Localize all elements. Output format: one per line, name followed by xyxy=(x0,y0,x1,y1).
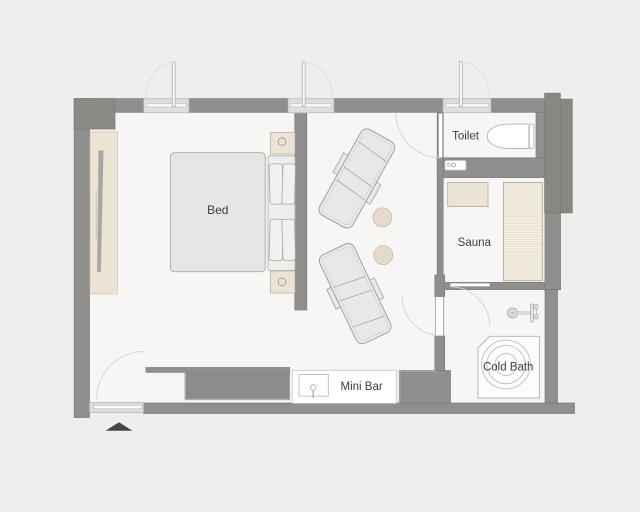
svg-text:Sauna: Sauna xyxy=(458,237,492,249)
svg-text:Toilet: Toilet xyxy=(452,130,480,142)
svg-text:Mini Bar: Mini Bar xyxy=(341,381,383,393)
svg-text:Bed: Bed xyxy=(207,203,228,217)
svg-text:Cold Bath: Cold Bath xyxy=(483,362,534,374)
